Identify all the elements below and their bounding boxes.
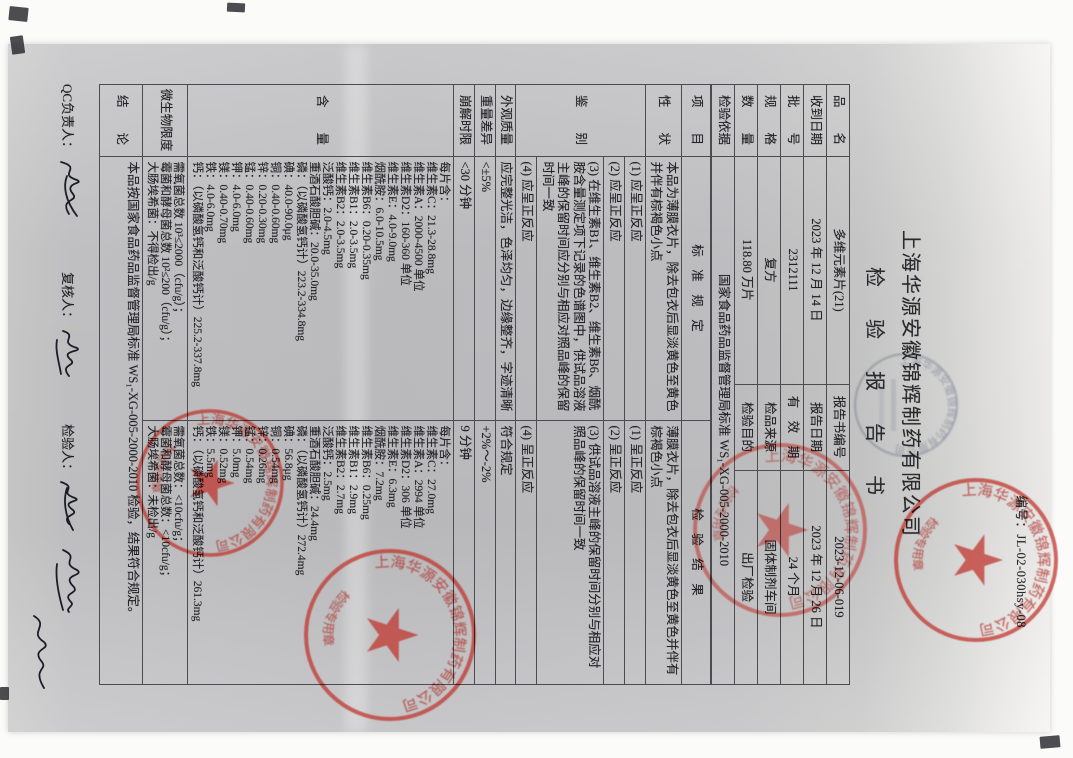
report-number: 编号：JL-02-030hsy-08: [1013, 48, 1036, 720]
result-cell: (4) 呈正反应: [516, 420, 537, 684]
field-label: 收到日期: [804, 84, 827, 156]
row-label: 微生物限度: [143, 84, 188, 156]
result-cell: (1) 呈正反应: [625, 420, 646, 684]
standard-cell: <30 分钟: [454, 156, 475, 420]
field-value: 国家食品药品监督管理局标准 WS₁-XG-005-2000-2010: [712, 156, 735, 684]
scan-artifact: [10, 35, 25, 55]
standard-cell: (4) 应呈正反应: [516, 156, 537, 420]
field-value: 118.80 万片: [735, 156, 758, 384]
inspection-report-document: 编号：JL-02-030hsy-08 上海华源安徽锦辉制药有限公司 检 验 报 …: [26, 48, 1036, 720]
row-identification: 鉴 别 (1) 应呈正反应 (1) 呈正反应: [625, 84, 646, 684]
field-value: 复方: [758, 156, 781, 384]
standard-cell: <±5%: [475, 156, 496, 420]
row-label: 含 量: [188, 84, 454, 156]
table-row: 收到日期 2023 年 12 月 14 日 报告日期 2023 年 12 月 2…: [804, 84, 827, 684]
reviewer-label: 复核人：: [60, 272, 79, 324]
field-value: 2023 年 12 月 26 日: [804, 470, 827, 684]
field-label: 检验依据: [712, 84, 735, 156]
standard-cell: 本品为薄膜衣片，除去包衣后显淡黄色至黄色并伴有棕褐色小点: [645, 156, 681, 420]
company-title: 上海华源安徽锦辉制药有限公司: [898, 48, 927, 720]
field-value: 出厂检验: [735, 470, 758, 684]
field-label: 有 效 期: [781, 384, 804, 470]
standard-cell: 应完整光洁，色泽均匀，边缘整齐，字迹清晰: [495, 156, 516, 420]
result-cell: (3) 供试品溶液主峰的保留时间分别与相应对照品峰的保留时间一致: [537, 420, 605, 684]
scan-artifact: [1040, 735, 1061, 749]
qc-manager-label: QC负责人：: [60, 84, 79, 154]
field-label: 报告书编号: [827, 384, 850, 470]
info-table: 品 名 多维元素片(21) 报告书编号 2023-12-06-019 收到日期 …: [711, 84, 850, 685]
row-identification: (2) 应呈正反应 (2) 呈正反应: [604, 84, 625, 684]
result-cell: (2) 呈正反应: [604, 420, 625, 684]
scan-artifact: [227, 3, 245, 13]
field-value: 2023-12-06-019: [827, 470, 850, 684]
row-label: 性 状: [645, 84, 681, 156]
result-cell: +2%～-2%: [475, 420, 496, 684]
row-weight-variation: 重量差异 <±5% +2%～-2%: [475, 84, 496, 684]
scan-artifact: [8, 6, 28, 22]
extra-handwriting: [24, 612, 54, 692]
table-row: 品 名 多维元素片(21) 报告书编号 2023-12-06-019: [827, 84, 850, 684]
field-value: 固体制剂车间: [758, 470, 781, 684]
field-value: 多维元素片(21): [827, 156, 850, 384]
field-value: 2023 年 12 月 14 日: [804, 156, 827, 384]
column-header-standard: 标 准 规 定: [682, 156, 711, 420]
field-label: 批 号: [781, 84, 804, 156]
result-cell: 9 分钟: [454, 420, 475, 684]
standard-cell: 每片含： 维生素C：21.3-28.8mg 维生素A：2000-4500 单位 …: [188, 156, 454, 420]
standard-cell: (1) 应呈正反应: [625, 156, 646, 420]
row-appearance: 性 状 本品为薄膜衣片，除去包衣后显淡黄色至黄色并伴有棕褐色小点 薄膜衣片，除去…: [645, 84, 681, 684]
conclusion-text: 本品按国家食品药品监督管理局标准 WS₁-XG-005-2000-2010 检验…: [100, 156, 143, 684]
row-label: 结 论: [100, 84, 143, 156]
row-assay: 含 量 每片含： 维生素C：21.3-28.8mg 维生素A：2000-4500…: [188, 84, 454, 684]
result-cell: 薄膜衣片，除去包衣后显淡黄色至黄色并伴有棕褐色小点: [645, 420, 681, 684]
standard-cell: (3) 在维生素B1、维生素B2、维生素B6、烟酰胺含量测定项下记录的色谱图中，…: [537, 156, 605, 420]
field-value: 24 个月: [781, 470, 804, 684]
scan-artifact: [0, 687, 9, 700]
screenshot-root: { "page": { "report_no": "编号：JL-02-030hs…: [0, 0, 1073, 758]
reviewer-signature: [54, 326, 86, 380]
result-cell: 每片含： 维生素C：27.0mg 维生素A：2994 单位 维生素D2：306 …: [188, 420, 454, 684]
table-row: 规 格 复方 检品来源 固体制剂车间: [758, 84, 781, 684]
tester-label: 检验人：: [60, 424, 79, 476]
row-label: 外观质量: [495, 84, 516, 156]
qc-manager-signature: [54, 156, 88, 222]
column-header-result: 检 验 结 果: [682, 420, 711, 684]
tester-signature: [54, 478, 86, 534]
spec-table: 项 目 标 准 规 定 检 验 结 果 性 状 本品为薄膜衣片，除去包衣后显淡黄…: [100, 84, 712, 685]
table-row: 数 量 118.80 万片 检验目的 出厂检验: [735, 84, 758, 684]
row-conclusion: 结 论 本品按国家食品药品监督管理局标准 WS₁-XG-005-2000-201…: [100, 84, 143, 684]
result-cell: 需氧菌总数：<10cfu/g； 霉菌和酵母菌总数：<10cfu/g； 大肠埃希菌…: [143, 420, 188, 684]
row-microbial-limit: 微生物限度 需氧菌总数 10³≤2000（cfu/g）； 霉菌和酵母菌总数 10…: [143, 84, 188, 684]
standard-cell: 需氧菌总数 10³≤2000（cfu/g）； 霉菌和酵母菌总数 10²≤200（…: [143, 156, 188, 420]
row-label: 重量差异: [475, 84, 496, 156]
result-cell: 符合规定: [495, 420, 516, 684]
spec-header-row: 项 目 标 准 规 定 检 验 结 果: [682, 84, 711, 684]
row-identification: (4) 应呈正反应 (4) 呈正反应: [516, 84, 537, 684]
document-title: 检 验 报 告 书: [862, 48, 891, 720]
row-identification: (3) 在维生素B1、维生素B2、维生素B6、烟酰胺含量测定项下记录的色谱图中，…: [537, 84, 605, 684]
signature-line: QC负责人： 复核人： 检验人：: [60, 84, 90, 684]
field-label: 品 名: [827, 84, 850, 156]
table-row: 批 号 2312111 有 效 期 24 个月: [781, 84, 804, 684]
field-label: 报告日期: [804, 384, 827, 470]
standard-cell: (2) 应呈正反应: [604, 156, 625, 420]
column-header-item: 项 目: [682, 84, 711, 156]
extra-handwriting: [54, 546, 90, 616]
row-appearance-quality: 外观质量 应完整光洁，色泽均匀，边缘整齐，字迹清晰 符合规定: [495, 84, 516, 684]
row-label: 鉴 别: [516, 84, 645, 156]
field-label: 数 量: [735, 84, 758, 156]
star-icon: [954, 534, 1003, 585]
field-value: 2312111: [781, 156, 804, 384]
row-label: 崩解时限: [454, 84, 475, 156]
field-label: 检验目的: [735, 384, 758, 470]
field-label: 检品来源: [758, 384, 781, 470]
row-disintegration: 崩解时限 <30 分钟 9 分钟: [454, 84, 475, 684]
field-label: 规 格: [758, 84, 781, 156]
table-row-basis: 检验依据 国家食品药品监督管理局标准 WS₁-XG-005-2000-2010: [712, 84, 735, 684]
